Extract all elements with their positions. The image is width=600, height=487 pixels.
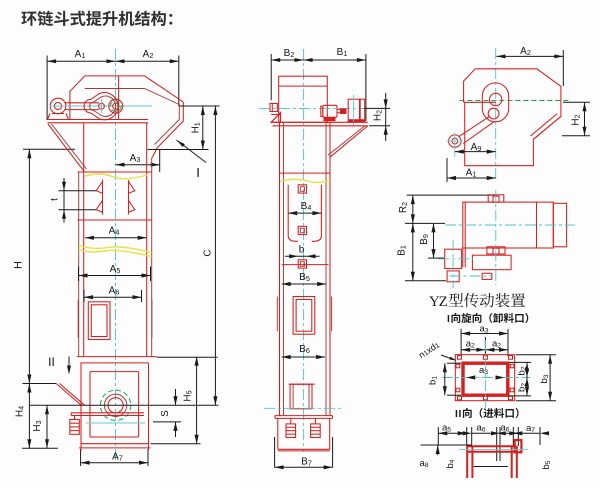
svg-text:A2: A2 [520, 46, 531, 57]
svg-text:I: I [196, 165, 200, 180]
svg-text:A5: A5 [110, 264, 121, 275]
svg-text:H3: H3 [32, 420, 43, 431]
svg-text:C: C [203, 249, 214, 256]
svg-text:H2: H2 [571, 114, 582, 125]
svg-text:b: b [299, 245, 305, 256]
svg-text:S: S [160, 410, 171, 417]
svg-text:A4: A4 [109, 226, 120, 237]
svg-text:B7: B7 [301, 457, 312, 468]
svg-text:H: H [13, 261, 25, 269]
svg-text:H5: H5 [183, 390, 194, 401]
svg-text:B9: B9 [419, 234, 430, 245]
svg-text:B6: B6 [299, 344, 310, 355]
svg-text:B4: B4 [301, 201, 312, 212]
svg-text:A3: A3 [130, 153, 141, 164]
svg-text:H1: H1 [191, 122, 202, 133]
svg-text:I: I [459, 409, 462, 420]
svg-text:A1: A1 [75, 49, 86, 60]
svg-text:B5: B5 [299, 272, 310, 283]
svg-text:A9: A9 [471, 142, 482, 153]
svg-text:B1: B1 [397, 245, 408, 256]
svg-text:B2: B2 [284, 48, 295, 59]
svg-text:A1: A1 [466, 168, 477, 179]
svg-text:B1: B1 [337, 47, 348, 58]
svg-text:Z: Z [439, 294, 448, 310]
svg-text:H2: H2 [373, 110, 384, 121]
svg-text:t: t [50, 198, 61, 201]
svg-text:I: I [447, 314, 450, 325]
svg-text:H4: H4 [15, 406, 26, 417]
svg-text:A7: A7 [112, 452, 123, 463]
svg-text:A6: A6 [109, 286, 120, 297]
svg-text:R2: R2 [398, 202, 409, 213]
svg-text:II: II [48, 355, 55, 369]
svg-text:A2: A2 [143, 49, 154, 60]
